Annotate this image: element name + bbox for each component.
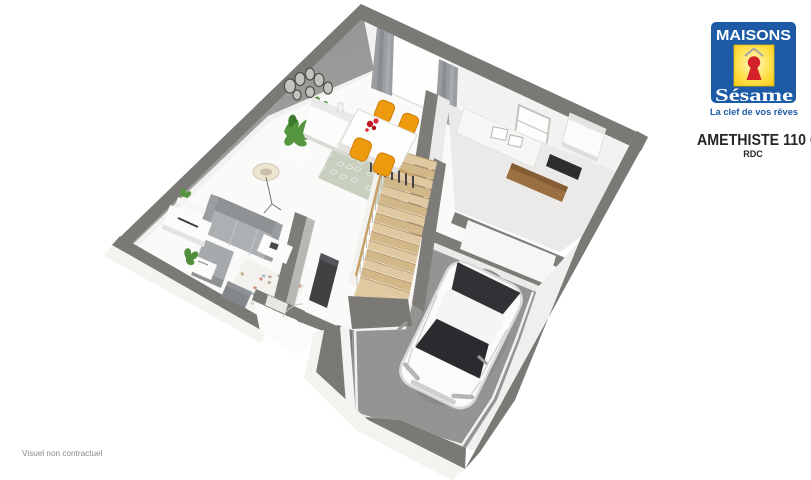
svg-text:RDC: RDC [743,149,763,159]
svg-text:La clef de vos rêves: La clef de vos rêves [710,107,798,117]
svg-text:MAISONS: MAISONS [716,28,791,44]
svg-text:AMETHISTE 110 GI: AMETHISTE 110 GI [697,132,811,149]
svg-text:Visuel non contractuel: Visuel non contractuel [22,449,103,458]
svg-text:Sésame: Sésame [715,85,793,105]
